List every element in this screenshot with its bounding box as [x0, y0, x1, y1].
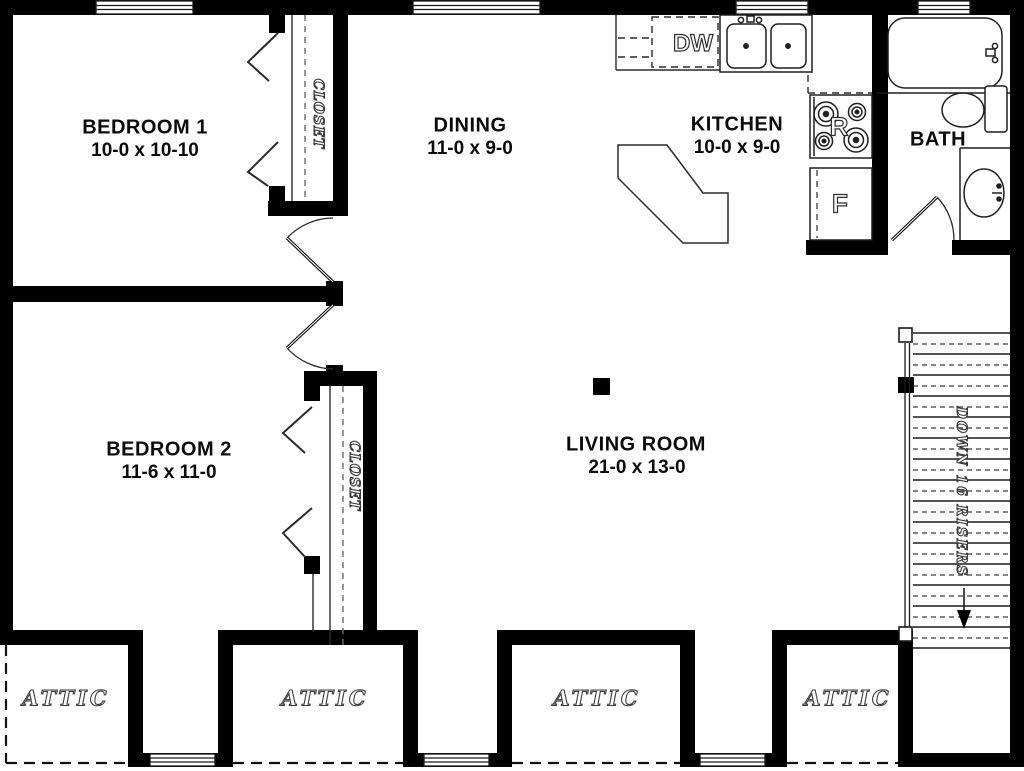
room-label-dining: DINING	[434, 115, 507, 138]
kitchen-peninsula	[618, 145, 728, 243]
bifold-door	[248, 33, 278, 81]
attic-label-3: ATTIC	[553, 686, 640, 711]
room-label-bedroom-1: BEDROOM 1	[82, 117, 208, 140]
bifold-door	[283, 407, 312, 453]
range-label: R	[830, 112, 849, 143]
room-dims-bedroom-1: 10-0 x 10-10	[91, 140, 199, 162]
vanity-sink	[960, 148, 1010, 240]
attic-label-1: ATTIC	[22, 686, 109, 711]
stairs-label: DOWN 16 RISERS	[953, 407, 969, 578]
door-bedroom2	[287, 305, 333, 369]
room-dims-living-room: 21-0 x 13-0	[588, 457, 685, 479]
structural-posts	[593, 377, 914, 395]
door-bath	[892, 197, 954, 240]
window	[424, 754, 489, 766]
room-label-living-room: LIVING ROOM	[566, 434, 706, 457]
railing-post	[899, 627, 912, 641]
closet-bedroom1	[248, 15, 305, 201]
room-label-bedroom-2: BEDROOM 2	[106, 439, 232, 462]
floor-plan: BEDROOM 1 10-0 x 10-10 DINING 11-0 x 9-0…	[0, 0, 1024, 771]
closet-label-bedroom-1: CLOSET	[310, 79, 326, 149]
window	[700, 754, 765, 766]
bathtub	[888, 18, 1002, 88]
window	[413, 1, 540, 14]
bifold-door	[283, 508, 312, 557]
room-label-kitchen: KITCHEN	[691, 114, 783, 137]
window	[96, 1, 193, 14]
room-label-bath: BATH	[910, 129, 966, 152]
attic-label-2: ATTIC	[281, 686, 368, 711]
door-bedroom1	[287, 218, 333, 282]
closet-label-bedroom-2: CLOSET	[346, 441, 362, 511]
room-dims-kitchen: 10-0 x 9-0	[694, 137, 781, 159]
railing-post	[899, 328, 912, 342]
refrigerator-label: F	[832, 189, 848, 220]
window	[150, 754, 215, 766]
bifold-door	[248, 142, 278, 186]
window	[918, 1, 970, 14]
room-dims-dining: 11-0 x 9-0	[427, 138, 513, 160]
attic-label-4: ATTIC	[804, 686, 891, 711]
down-arrow	[957, 588, 971, 629]
closet-bedroom2	[283, 386, 343, 645]
room-dims-bedroom-2: 11-6 x 11-0	[121, 462, 216, 484]
dishwasher-label: DW	[673, 30, 713, 58]
window	[736, 1, 808, 14]
kitchen-sink	[720, 15, 812, 72]
